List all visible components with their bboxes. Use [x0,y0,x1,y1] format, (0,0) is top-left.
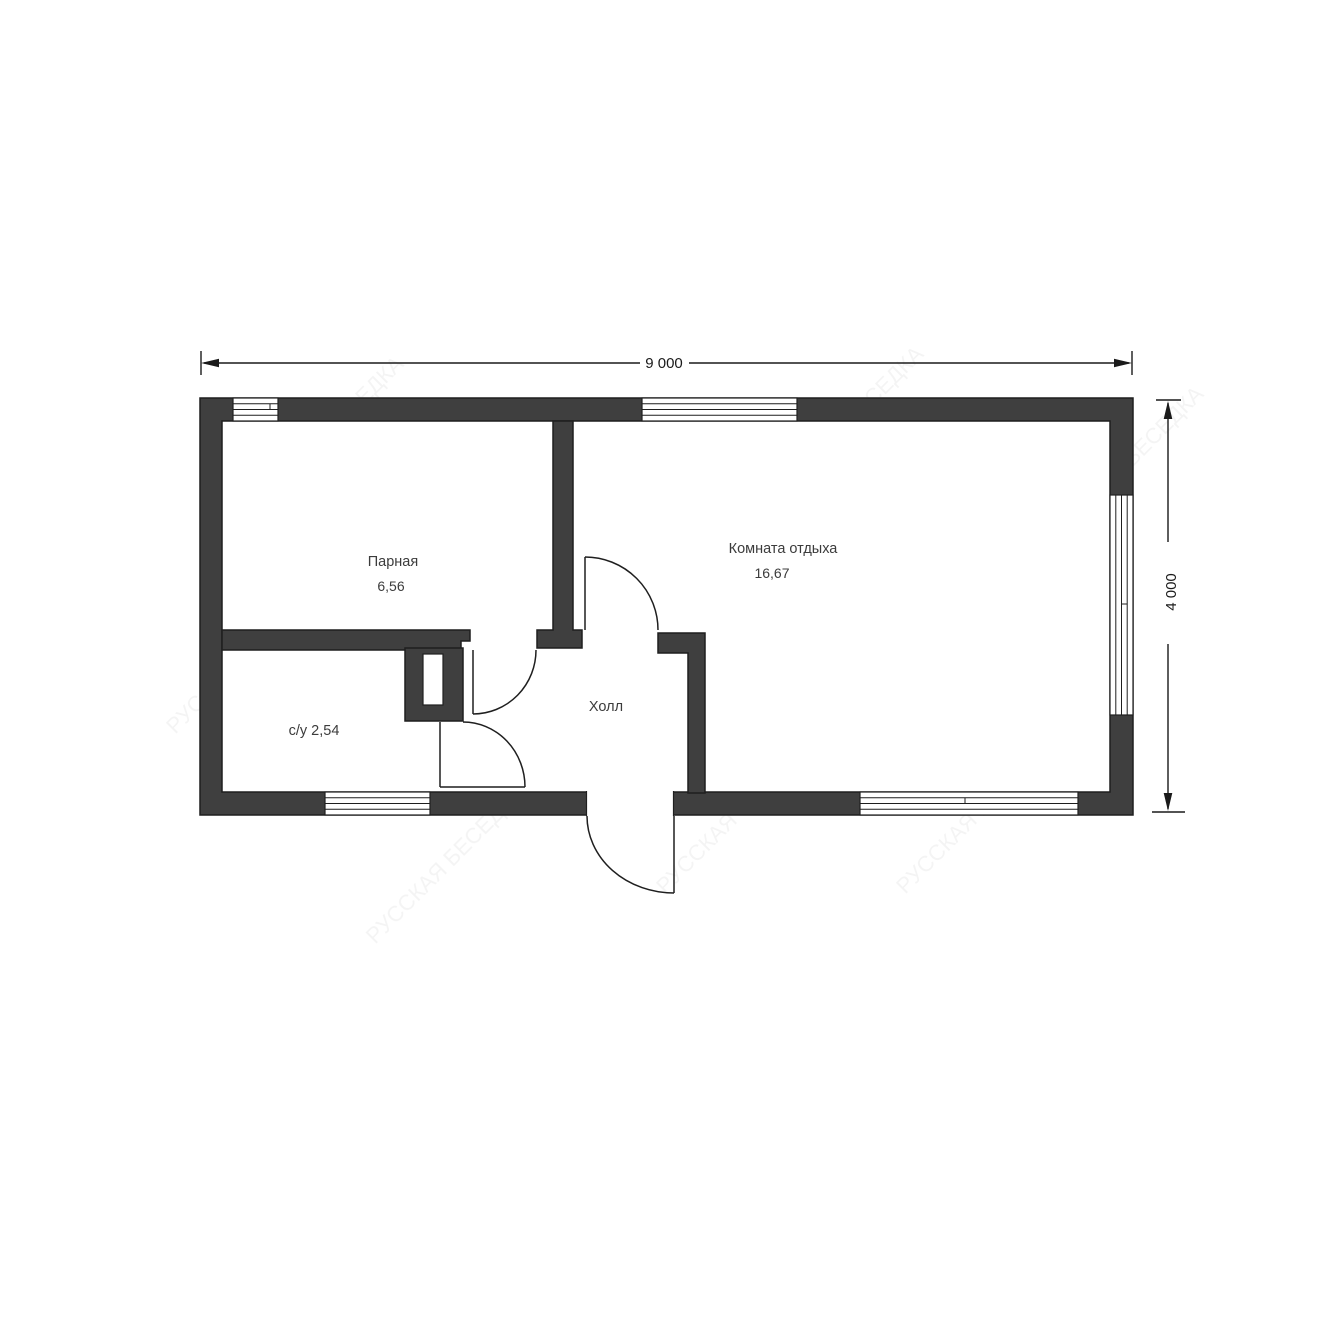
room-label-hall: Холл [589,699,623,715]
room-label-wc: с/у 2,54 [289,723,340,739]
dimension-height-label: 4 000 [1163,573,1180,611]
furnace-niche [423,654,443,705]
window-right [1110,495,1133,715]
wall-parnaya-bottom [222,630,470,650]
dimension-width-label: 9 000 [645,355,683,372]
room-area-rest: 16,67 [754,565,789,581]
interior-floor [222,421,1110,792]
floor-plan-canvas: РУССКАЯ БЕСЕДКА РУССКАЯ БЕСЕДКА РУССКАЯ … [0,0,1328,1328]
window-top-left [233,398,278,421]
room-label-rest: Комната отдыха [729,541,839,557]
window-bottom-left [325,792,430,815]
dimension-width: 9 000 [201,351,1132,375]
floor-plan-page: РУССКАЯ БЕСЕДКА РУССКАЯ БЕСЕДКА РУССКАЯ … [0,0,1328,1328]
entrance-opening [586,789,674,818]
window-top-center [642,398,797,421]
window-bottom-right [860,792,1078,815]
room-label-parnaya: Парная [368,554,418,570]
dimension-height: 4 000 [1152,400,1185,812]
room-area-parnaya: 6,56 [377,578,404,594]
